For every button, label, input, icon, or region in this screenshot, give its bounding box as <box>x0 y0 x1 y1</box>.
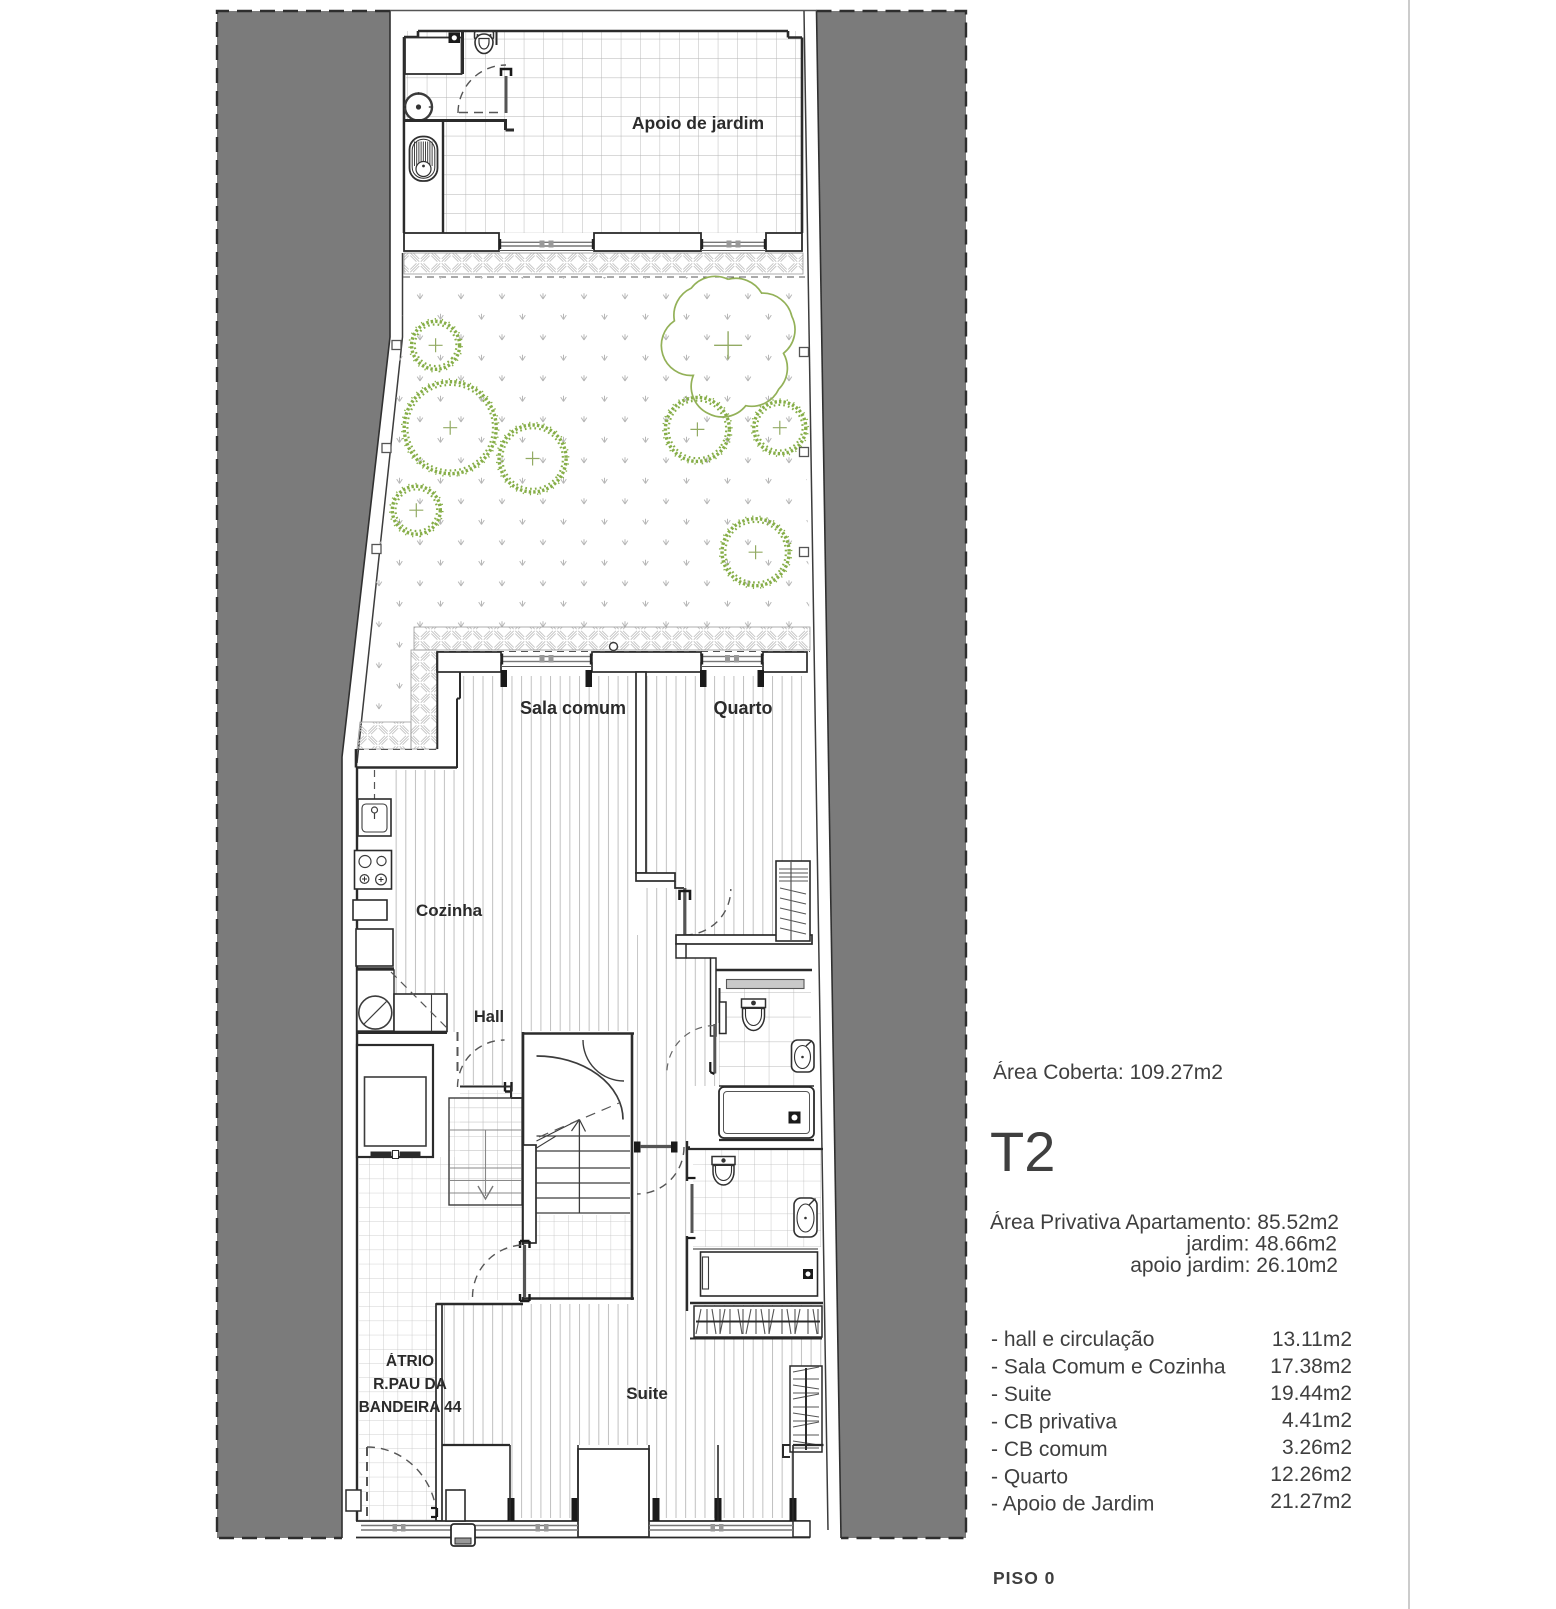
svg-text:Sala comum: Sala comum <box>520 698 626 718</box>
svg-text:apoio jardim: 26.10m2: apoio jardim: 26.10m2 <box>1130 1254 1338 1277</box>
svg-text:21.27m2: 21.27m2 <box>1270 1490 1352 1513</box>
svg-text:Área Privativa Apartamento: 85: Área Privativa Apartamento: 85.52m2 <box>990 1211 1339 1234</box>
svg-text:Área Coberta: 109.27m2: Área Coberta: 109.27m2 <box>993 1061 1223 1084</box>
svg-text:T2: T2 <box>990 1120 1055 1183</box>
svg-text:ÁTRIO: ÁTRIO <box>386 1353 434 1370</box>
svg-text:Quarto: Quarto <box>713 698 772 718</box>
svg-text:Hall: Hall <box>474 1008 504 1026</box>
svg-text:BANDEIRA 44: BANDEIRA 44 <box>359 1399 462 1416</box>
svg-text:Cozinha: Cozinha <box>416 901 483 920</box>
svg-text:- Suite: - Suite <box>991 1383 1052 1406</box>
svg-text:- CB comum: - CB comum <box>991 1438 1108 1461</box>
svg-text:jardim: 48.66m2: jardim: 48.66m2 <box>1185 1233 1337 1256</box>
svg-text:- Apoio de Jardim: - Apoio de Jardim <box>991 1493 1154 1516</box>
svg-text:- Sala Comum e Cozinha: - Sala Comum e Cozinha <box>991 1356 1226 1379</box>
svg-text:R.PAU DA: R.PAU DA <box>373 1376 447 1393</box>
svg-text:Apoio de jardim: Apoio de jardim <box>632 113 764 133</box>
svg-text:12.26m2: 12.26m2 <box>1270 1463 1352 1486</box>
svg-text:Suite: Suite <box>626 1384 668 1403</box>
svg-text:- hall e circulação: - hall e circulação <box>991 1328 1154 1351</box>
svg-text:PISO 0: PISO 0 <box>993 1568 1055 1588</box>
svg-text:19.44m2: 19.44m2 <box>1270 1382 1352 1405</box>
svg-text:4.41m2: 4.41m2 <box>1282 1409 1352 1432</box>
svg-text:- CB privativa: - CB privativa <box>991 1410 1117 1433</box>
svg-text:- Quarto: - Quarto <box>991 1465 1068 1488</box>
svg-text:13.11m2: 13.11m2 <box>1272 1328 1352 1351</box>
svg-text:17.38m2: 17.38m2 <box>1270 1355 1352 1378</box>
svg-text:3.26m2: 3.26m2 <box>1282 1436 1352 1459</box>
